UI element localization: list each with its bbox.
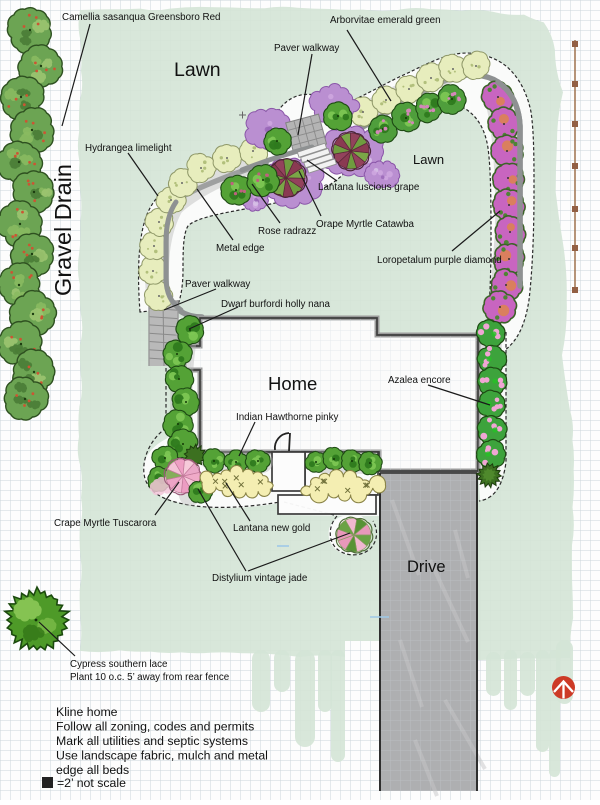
svg-text:Dwarf burfordi holly nana: Dwarf burfordi holly nana	[221, 299, 330, 310]
svg-text:Lantana luscious grape: Lantana luscious grape	[318, 182, 420, 193]
svg-text:Plant 10 o.c. 5’ away from rea: Plant 10 o.c. 5’ away from rear fence	[70, 672, 230, 683]
svg-text:=2’ not scale: =2’ not scale	[57, 776, 126, 790]
svg-text:Lantana new gold: Lantana new gold	[233, 523, 310, 534]
svg-text:Loropetalum purple diamond: Loropetalum purple diamond	[377, 255, 502, 266]
svg-text:Arborvitae emerald green: Arborvitae emerald green	[330, 15, 441, 26]
svg-text:Kline home: Kline home	[56, 705, 118, 719]
svg-text:Lawn: Lawn	[413, 152, 444, 167]
svg-text:Drive: Drive	[407, 558, 446, 576]
svg-text:Azalea encore: Azalea encore	[388, 375, 451, 386]
svg-text:Follow all zoning, codes and p: Follow all zoning, codes and permits	[56, 720, 254, 734]
svg-text:Cypress southern lace: Cypress southern lace	[70, 659, 168, 670]
svg-text:Paver walkway: Paver walkway	[185, 279, 250, 290]
svg-text:Home: Home	[268, 373, 317, 394]
svg-text:Mark all utilities and septic: Mark all utilities and septic systems	[56, 734, 248, 748]
svg-text:Camellia sasanqua Greensboro R: Camellia sasanqua Greensboro Red	[62, 12, 220, 23]
svg-text:Metal edge: Metal edge	[216, 243, 265, 254]
svg-text:Crape Myrtle Tuscarora: Crape Myrtle Tuscarora	[54, 518, 157, 529]
svg-text:Lawn: Lawn	[174, 59, 221, 81]
svg-text:Gravel Drain: Gravel Drain	[50, 164, 76, 296]
svg-text:Distylium vintage jade: Distylium vintage jade	[212, 573, 308, 584]
svg-text:Hydrangea limelight: Hydrangea limelight	[85, 143, 172, 154]
svg-text:Rose radrazz: Rose radrazz	[258, 226, 316, 237]
svg-text:Use landscape fabric, mulch an: Use landscape fabric, mulch and metal	[56, 749, 268, 763]
svg-text:Paver walkway: Paver walkway	[274, 43, 339, 54]
svg-text:edge all beds: edge all beds	[56, 763, 129, 777]
svg-text:Orape Myrtle Catawba: Orape Myrtle Catawba	[316, 219, 415, 230]
svg-text:Indian Hawthorne pinky: Indian Hawthorne pinky	[236, 412, 338, 423]
